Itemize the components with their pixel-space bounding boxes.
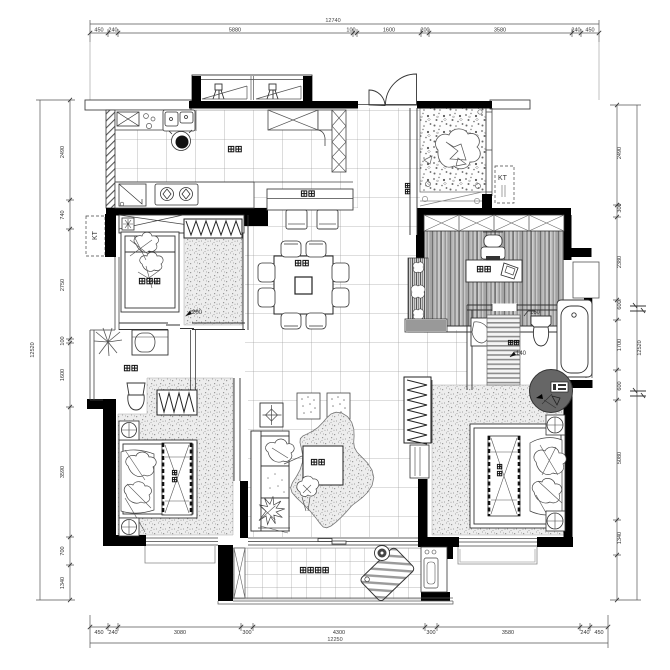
svg-text:3580: 3580 — [494, 28, 506, 34]
svg-text:2490: 2490 — [60, 146, 66, 158]
svg-text:1600: 1600 — [60, 369, 66, 381]
svg-text:3590: 3590 — [60, 466, 66, 478]
svg-text:700: 700 — [60, 546, 66, 555]
svg-text:450: 450 — [94, 630, 103, 636]
svg-text:240: 240 — [580, 630, 589, 636]
svg-text:740: 740 — [60, 210, 66, 219]
svg-text:450: 450 — [585, 28, 594, 34]
svg-text:100: 100 — [60, 336, 66, 345]
svg-text:450: 450 — [594, 630, 603, 636]
svg-text:KT: KT — [498, 175, 508, 182]
svg-text:450: 450 — [94, 28, 103, 34]
svg-text:600: 600 — [617, 381, 623, 390]
svg-text:300: 300 — [242, 630, 251, 636]
svg-text:160: 160 — [530, 310, 541, 316]
svg-text:12520: 12520 — [30, 342, 36, 357]
svg-text:12520: 12520 — [637, 340, 643, 355]
svg-text:5080: 5080 — [617, 452, 623, 464]
svg-text:240: 240 — [108, 28, 117, 34]
svg-text:2490: 2490 — [617, 147, 623, 159]
svg-text:140: 140 — [516, 351, 527, 357]
svg-text:600: 600 — [617, 300, 623, 309]
svg-text:12740: 12740 — [325, 18, 340, 24]
svg-text:300: 300 — [426, 630, 435, 636]
svg-text:240: 240 — [108, 630, 117, 636]
svg-text:3080: 3080 — [174, 630, 186, 636]
svg-text:12250: 12250 — [327, 637, 342, 643]
svg-text:1600: 1600 — [383, 28, 395, 34]
svg-text:1700: 1700 — [617, 339, 623, 351]
svg-text:5880: 5880 — [229, 28, 241, 34]
svg-text:3580: 3580 — [502, 630, 514, 636]
svg-text:KT: KT — [92, 230, 99, 240]
svg-text:1340: 1340 — [617, 532, 623, 544]
svg-text:1340: 1340 — [60, 577, 66, 589]
svg-text:2750: 2750 — [60, 279, 66, 291]
svg-text:2380: 2380 — [617, 256, 623, 268]
svg-text:4300: 4300 — [333, 630, 345, 636]
svg-text:200: 200 — [192, 310, 203, 316]
svg-text:300: 300 — [617, 203, 623, 212]
svg-text:100: 100 — [346, 28, 355, 34]
